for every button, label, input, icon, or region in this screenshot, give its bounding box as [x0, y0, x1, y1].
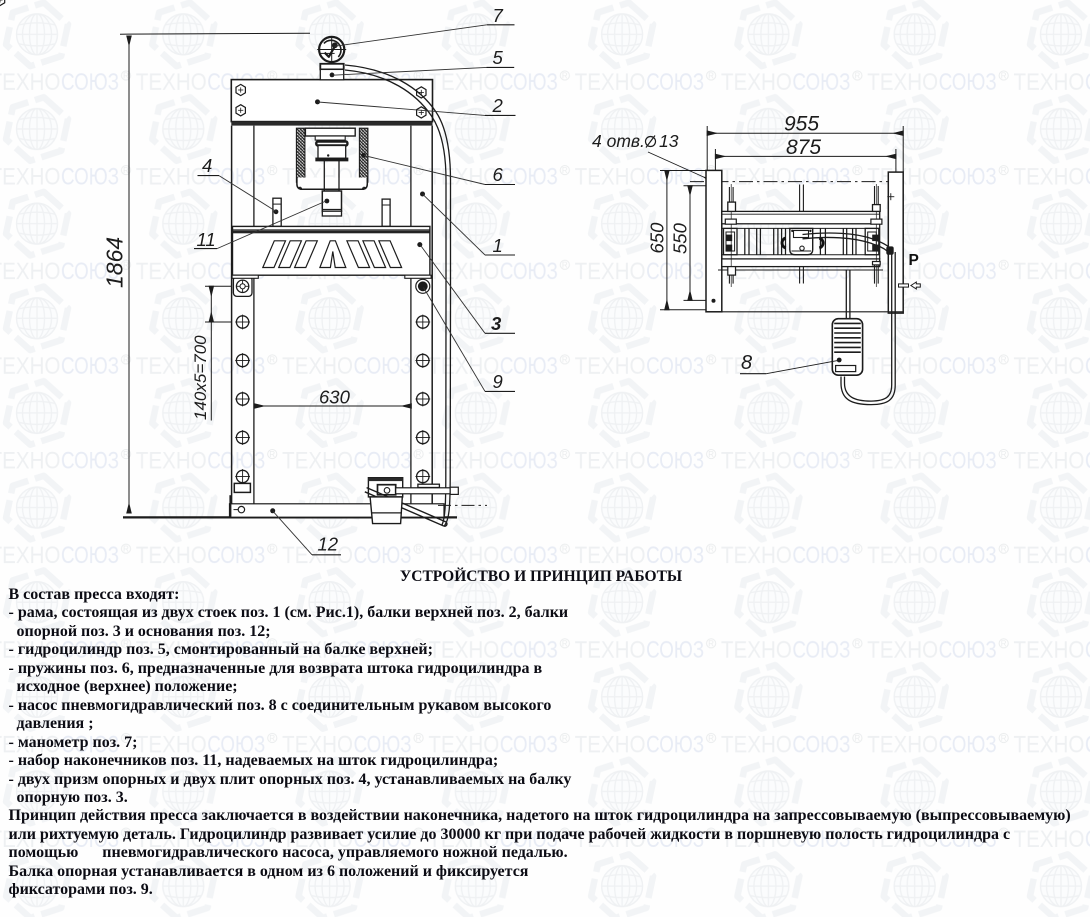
svg-text:955: 955 — [784, 113, 819, 136]
svg-text:1864: 1864 — [102, 237, 128, 288]
svg-text:650: 650 — [647, 222, 668, 254]
svg-text:4: 4 — [202, 155, 212, 176]
svg-text:4 отв.: 4 отв. — [592, 131, 645, 151]
svg-text:7: 7 — [493, 5, 504, 26]
svg-text:2: 2 — [492, 95, 504, 116]
svg-text:5: 5 — [493, 47, 504, 68]
svg-text:1: 1 — [493, 235, 503, 256]
svg-text:550: 550 — [670, 222, 691, 254]
svg-text:12: 12 — [318, 534, 339, 555]
svg-text:630: 630 — [319, 387, 351, 408]
svg-text:11: 11 — [197, 229, 216, 250]
svg-text:9: 9 — [493, 371, 503, 392]
svg-text:3: 3 — [491, 313, 502, 334]
svg-text:6: 6 — [493, 164, 504, 185]
svg-text:875: 875 — [786, 136, 821, 159]
svg-text:13: 13 — [659, 131, 679, 151]
svg-text:P: P — [909, 252, 919, 269]
svg-text:8: 8 — [741, 352, 752, 374]
svg-text:140х5=700: 140х5=700 — [191, 335, 210, 420]
